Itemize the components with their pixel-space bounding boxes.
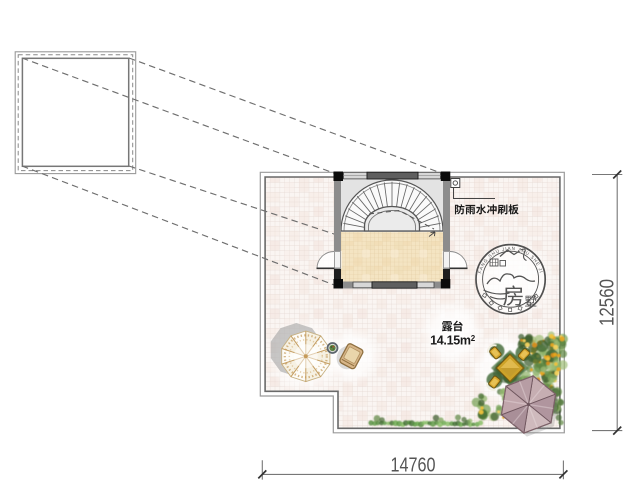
svg-text:14.15m2: 14.15m2: [430, 334, 476, 348]
svg-text:14760: 14760: [391, 454, 436, 476]
svg-text:12560: 12560: [597, 279, 619, 326]
